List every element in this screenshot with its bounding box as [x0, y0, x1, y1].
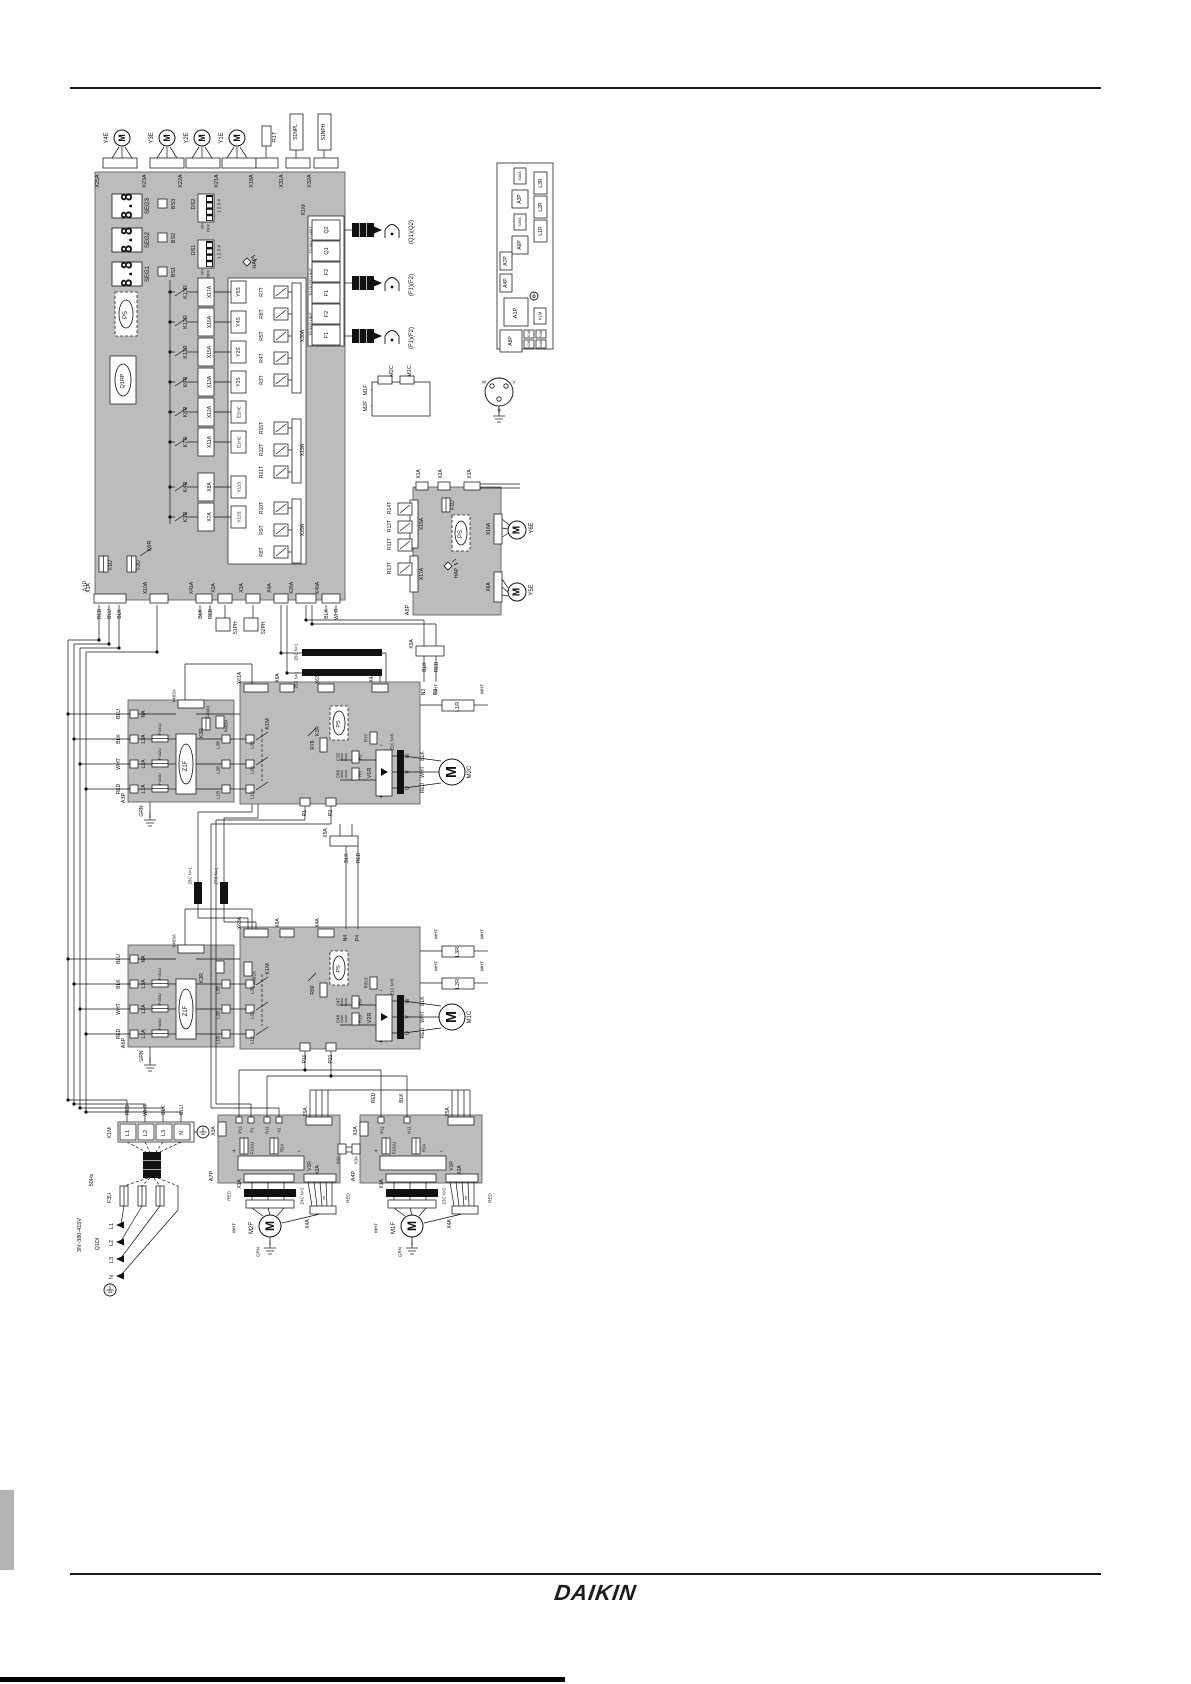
label-k9r: K9R [183, 377, 189, 388]
label-r13t: R13T [387, 562, 393, 574]
label-blk: BLK [116, 734, 122, 744]
label-l1: L1 [109, 1223, 115, 1229]
label-p1: P1 [302, 810, 308, 816]
component-box [296, 594, 316, 603]
wire [268, 1208, 270, 1215]
dashed-wire [145, 1142, 150, 1152]
dashed-wire [160, 1142, 181, 1152]
label-r313: R313 [364, 977, 369, 988]
wire [450, 1182, 454, 1206]
label-x41a: X41A [189, 581, 195, 594]
label-x5a: X5A [409, 639, 415, 649]
dashed-wire [156, 1142, 163, 1152]
junction-dot [168, 485, 171, 488]
label-x502a: X502A [252, 971, 257, 985]
label-wht: WHT [116, 758, 122, 769]
component-box [388, 1200, 436, 1208]
label-y3s: Y3S [236, 377, 242, 387]
label-u: U [497, 408, 500, 413]
label-k1m: K1M [265, 963, 271, 975]
label-blk: BLK [198, 609, 204, 619]
wire [468, 1182, 469, 1206]
ferrite-core [397, 995, 404, 1039]
label-x1m: X1M [538, 311, 543, 320]
label-r15t: R15T [259, 422, 265, 434]
label--q1-q2-: (Q1)(Q2) [409, 220, 415, 244]
label-a7p: A7P [503, 256, 509, 266]
component-box [274, 594, 288, 603]
label-f101u: F101U [392, 1142, 397, 1155]
component-box [222, 1030, 230, 1038]
label-l2b: L2B [250, 1011, 255, 1019]
wire [394, 1208, 405, 1216]
wire [240, 147, 247, 158]
label-x31a: X31A [279, 174, 285, 188]
component-box [300, 798, 310, 806]
label-k13r: K13R [183, 285, 189, 299]
junction-dot [304, 618, 307, 621]
seven-segment-digits: 8.8 [118, 226, 136, 253]
label-y6e: Y6E [529, 522, 535, 533]
label-bs3: BS3 [171, 199, 177, 209]
label-y2s: Y2S [236, 347, 242, 357]
component-box [404, 1117, 410, 1123]
label-c47: C47 [336, 997, 341, 1006]
component-box [286, 158, 310, 168]
label-y1e: Y1E [219, 132, 225, 143]
component-box [238, 1156, 304, 1170]
label-on: ON [200, 269, 205, 275]
junction-dot [107, 642, 110, 645]
label-x15a: X15A [207, 345, 213, 358]
label-l3b: L3B [250, 741, 255, 749]
label-k4r: K4R [183, 482, 189, 493]
wire [277, 1208, 284, 1216]
label-red: RED [125, 1104, 131, 1115]
label-red: RED [420, 1027, 426, 1038]
label-3n-380-415v: 3N~380-415V [77, 1218, 83, 1252]
label-x8a: X8A [207, 482, 213, 492]
label--: − [297, 1149, 301, 1155]
label-r10t: R10T [259, 502, 265, 514]
label-m1f: M1F [363, 384, 369, 396]
dip-switch-lever [207, 197, 212, 201]
label--: − [379, 988, 383, 994]
seven-segment-digits: 8.8 [118, 260, 136, 287]
label-y12s: Y12S [237, 511, 242, 522]
wire [121, 1206, 142, 1241]
label-red: RED [227, 1191, 232, 1201]
label-r24: R24 [280, 1143, 285, 1151]
label-f2: F2 [324, 311, 330, 317]
page-edge-tab [0, 1490, 14, 1570]
label-x29a: X29A [300, 523, 306, 536]
label-red: RED [116, 1028, 122, 1039]
label-red: RED [346, 1193, 351, 1203]
junction-dot [84, 1032, 87, 1035]
label--: − [439, 1149, 443, 1155]
label-x1a: X1A [86, 583, 92, 593]
dashed-wire [124, 1178, 148, 1186]
label-1-2-3-4: 1 2 3 4 [217, 199, 222, 213]
label-wht: WHT [143, 1104, 149, 1115]
label--: + [232, 1149, 236, 1155]
label-50hz: 50Hz [89, 1173, 95, 1186]
label-l1b: L1B [216, 791, 221, 799]
ferrite-core [220, 882, 228, 904]
label-x17a: X17A [419, 567, 425, 580]
label-x15a: X15A [419, 517, 425, 530]
label-k6r: K6R [147, 541, 153, 552]
label-n3: N3 [421, 689, 427, 696]
wire [227, 147, 234, 158]
label-l3r: L3R [455, 947, 461, 957]
label-ps: PS [123, 311, 129, 319]
label-m1f: M1F [391, 1222, 397, 1234]
wire [308, 1182, 312, 1206]
label-f401u: F401U [158, 968, 162, 980]
wire [502, 595, 508, 596]
dashed-wire [142, 1178, 150, 1186]
label-f2u: F2U [136, 560, 142, 570]
junction-dot [310, 622, 313, 625]
label-r24: R24 [422, 1143, 427, 1151]
label-x4a: X4A [315, 918, 321, 928]
component-box [314, 158, 338, 168]
label-x25a: X25A [95, 174, 101, 188]
dip-switch-lever [207, 262, 212, 266]
label-r11t: R11T [387, 538, 393, 550]
junction-dot [66, 957, 69, 960]
dip-switch-lever [207, 203, 212, 207]
label-red: RED [420, 782, 426, 793]
label-w: W [405, 998, 411, 1003]
flow-arrow-icon [374, 227, 382, 234]
junction-dot [168, 350, 171, 353]
label-l1b: L1B [250, 791, 255, 799]
label-z1c-n-5: Z1C N=5 [390, 978, 395, 996]
label-x19a: X19A [300, 443, 306, 456]
label-blk: BLK [420, 751, 426, 761]
label-x12a: X12A [207, 405, 213, 418]
motor-letter: M [444, 1011, 460, 1023]
label-x22a: X22A [178, 174, 184, 188]
component-box [380, 1156, 446, 1170]
label-wht: WHT [434, 929, 439, 939]
shielded-cable-symbol [352, 223, 374, 237]
wiring-diagram: 8.88.88.8MMMMMMMMMMY4EY3EY2EY1ER1TS1NPLS… [0, 0, 1191, 1684]
label-y5s: Y5S [236, 287, 242, 297]
label-v1r: V1R [449, 1161, 455, 1171]
label-l2r: L2R [455, 979, 461, 989]
wire [252, 1208, 263, 1216]
label-n11: N11 [265, 1126, 270, 1134]
label-x4a: X4A [336, 1156, 341, 1164]
wire [205, 147, 212, 158]
label-q1: Q1 [324, 247, 330, 254]
label--: + [379, 795, 383, 801]
component-box [236, 1117, 242, 1123]
label-x63a: X63A [315, 671, 321, 684]
label-m2f: M2F [363, 400, 369, 412]
label-grn: GRN [398, 1247, 403, 1257]
label-r5t: R5T [259, 331, 265, 340]
label-seg1: SEG1 [145, 265, 151, 282]
component-box [150, 594, 168, 603]
component-box [216, 961, 224, 973]
label-f101u: F101U [250, 1142, 255, 1155]
label-s1ph: S1PH [233, 621, 239, 634]
component-box [248, 1117, 254, 1123]
label-u: U [405, 1031, 411, 1035]
junction-dot [66, 712, 69, 715]
label-x1a: X1A [527, 330, 531, 337]
wire [157, 147, 164, 158]
label-x3a: X3A [467, 469, 473, 479]
label--: + [374, 1149, 378, 1155]
motor-letter: M [512, 526, 523, 534]
label-l2a: L2A [141, 1004, 147, 1014]
label-r7t: R7T [259, 287, 265, 296]
label-x30a: X30A [518, 171, 522, 181]
label-ds2: DS2 [191, 199, 197, 210]
label-v2r: V2R [367, 1013, 373, 1024]
component-box [244, 684, 268, 692]
component-box [103, 158, 137, 168]
motor-letter: M [232, 134, 242, 141]
label--f1-f2-: (F1)(F2) [409, 274, 415, 296]
label-p2: P2 [328, 810, 334, 816]
ferrite-core [397, 750, 404, 794]
component-box [158, 267, 167, 276]
label-z4c-n-2: Z4C N=2 [300, 1187, 305, 1205]
label-l3b: L3B [216, 741, 221, 749]
component-box [222, 980, 230, 988]
component-box [280, 684, 294, 692]
label-n: N [109, 1275, 115, 1279]
label-p11: P11 [380, 1126, 385, 1134]
label-s1npl: S1NPL [293, 124, 299, 140]
label-l3: L3 [161, 1130, 167, 1136]
label-x2a: X2A [527, 340, 531, 347]
component-box [218, 594, 232, 603]
wire [502, 579, 508, 588]
label-f403u: F403U [158, 1018, 162, 1030]
shielded-cable-symbol [352, 329, 374, 343]
label-to-out-d-unit: TO OUT/D UNIT [309, 267, 313, 296]
dip-switch-lever [207, 210, 212, 214]
label-r8t: R8T [259, 547, 265, 556]
component-box [222, 1005, 230, 1013]
label-grn: GRN [139, 1050, 145, 1062]
label-c32: C32 [336, 752, 341, 761]
label-seg3: SEG3 [145, 197, 151, 214]
label-q2: Q2 [324, 226, 330, 233]
label-z1f: Z1F [183, 1005, 189, 1016]
label-blk: BLK [420, 996, 426, 1006]
junction-dot [329, 1074, 332, 1077]
label-r3t: R3T [259, 375, 265, 384]
component-box [300, 1043, 310, 1051]
label-x4a: X4A [539, 340, 543, 347]
label-red: RED [208, 608, 214, 619]
label-u: U [405, 786, 411, 790]
label-blk: BLK [422, 662, 428, 672]
component-box [130, 955, 138, 963]
label-x40a: X40A [315, 581, 321, 594]
junction-dot [97, 638, 100, 641]
label-s2ph: S2PH [261, 621, 267, 634]
wire [125, 147, 132, 158]
component-box [216, 618, 230, 631]
label-x3a: X3A [353, 1126, 359, 1136]
label-c48: C48 [336, 1014, 341, 1023]
component-box [386, 1174, 436, 1182]
label-x16a: X16A [207, 315, 213, 328]
dip-switch-lever [207, 256, 212, 260]
component-box [306, 1117, 332, 1125]
label-blk: BLK [161, 1105, 167, 1115]
label-ds1: DS1 [191, 245, 197, 256]
component-box [246, 594, 260, 603]
label-v1r: V1R [367, 768, 373, 779]
label-l1b: L1B [216, 1036, 221, 1044]
junction-dot [303, 1068, 306, 1071]
label-f401u: F401U [158, 723, 162, 735]
label-r4t: R4T [259, 353, 265, 362]
junction-dot [285, 671, 288, 674]
component-box [318, 684, 334, 692]
seven-segment-digits: 8.8 [118, 192, 136, 219]
label--: + [379, 1040, 383, 1046]
dashed-wire [127, 1142, 146, 1152]
flow-arrow-icon [374, 333, 382, 340]
label-l1a: L1A [141, 784, 147, 794]
label--f1-f2-: (F1)(F2) [409, 327, 415, 349]
wire [419, 1208, 426, 1216]
label-z8c-n-1: Z8C N=1 [188, 867, 193, 885]
daikin-logo: DAIKIN [0, 1580, 1191, 1606]
junction-dot [117, 646, 120, 649]
component-box [416, 482, 428, 490]
shield-terminator-icon [385, 225, 399, 239]
shield-terminator-dot [391, 339, 394, 342]
label-x11a: X11A [207, 435, 213, 448]
label-grn: GRN [139, 805, 145, 817]
wire [170, 147, 177, 158]
component-box [360, 1122, 368, 1136]
wire [121, 1206, 124, 1224]
label-x1a: X1A [237, 1179, 243, 1189]
label-to-multi-unit: TO MULTI UNIT [309, 226, 313, 254]
label-e2hc: E2HC [237, 405, 242, 418]
label-x1m: X1M [107, 1127, 113, 1139]
label-off: OFF [206, 223, 211, 232]
label-x21a: X21A [214, 174, 220, 188]
label-wht: WHT [116, 1003, 122, 1014]
junction-dot [78, 762, 81, 765]
motor-letter: M [162, 134, 172, 141]
terminal-pin [490, 384, 494, 388]
label-off: OFF [206, 269, 211, 278]
label-m2c: M2C [389, 365, 395, 377]
label-q1rp: Q1RP [120, 373, 126, 388]
label-k12r: K12R [183, 315, 189, 329]
label-ps: PS [336, 965, 342, 973]
label-f403u: F403U [158, 773, 162, 785]
component-box [244, 1174, 294, 1182]
wire [112, 147, 119, 158]
component-box [262, 126, 271, 146]
label-5: 5 [323, 1196, 326, 1201]
component-box [130, 710, 138, 718]
label-bs1: BS1 [171, 267, 177, 277]
ferrite-core [244, 1189, 296, 1197]
component-box [244, 618, 258, 631]
label-ps: PS [458, 530, 464, 538]
label-blu: BLU [116, 709, 122, 719]
label-v: V [512, 380, 515, 385]
label-w: W [482, 380, 487, 385]
wire [462, 1182, 464, 1206]
label-ps: PS [336, 720, 342, 728]
label-blu: BLU [116, 954, 122, 964]
label-blk: BLK [324, 609, 330, 619]
label-a1p: A1P [513, 307, 519, 318]
label-l2b: L2B [216, 1011, 221, 1019]
label-x1m: X1M [301, 204, 307, 216]
label-on: ON [200, 223, 205, 229]
label-x5a: X5A [445, 1107, 451, 1117]
dashed-wire [158, 1178, 178, 1186]
label-q1di: Q1DI [95, 1237, 101, 1250]
dip-switch-lever [207, 243, 212, 247]
wire [282, 1214, 320, 1223]
label-x5a: X5A [303, 1107, 309, 1117]
label-blk: BLK [117, 609, 123, 619]
junction-dot [168, 440, 171, 443]
shield-terminator-dot [391, 233, 394, 236]
flow-arrow-icon [116, 1256, 124, 1263]
label-l3b: L3B [216, 986, 221, 994]
label-z1f: Z1F [183, 760, 189, 771]
label-y2e: Y2E [184, 132, 190, 143]
component-box [378, 1117, 384, 1123]
component-box [256, 158, 278, 168]
label-wht: WHT [232, 1223, 237, 1233]
label-v1r: V1R [307, 1161, 313, 1171]
component-box [222, 785, 230, 793]
flow-arrow-icon [116, 1239, 124, 1246]
label-x23a: X23A [142, 174, 148, 188]
label-grn: GRN [256, 1247, 261, 1257]
label-x403a: X403A [224, 720, 229, 733]
label-z7c-n-1: Z7C N=1 [214, 867, 219, 885]
label-x4a: X4A [369, 673, 375, 683]
label-wht: WHT [374, 1223, 379, 1233]
label-k1r: K1R [315, 726, 321, 736]
junction-dot [279, 651, 282, 654]
junction-dot [78, 1106, 81, 1109]
label-n4: N4 [343, 935, 349, 942]
junction-dot [168, 515, 171, 518]
label-wht: WHT [334, 608, 340, 619]
component-box [416, 646, 444, 656]
component-box [322, 594, 340, 603]
component-box [130, 1030, 138, 1038]
component-box [158, 199, 167, 208]
label-red: RED [97, 608, 103, 619]
